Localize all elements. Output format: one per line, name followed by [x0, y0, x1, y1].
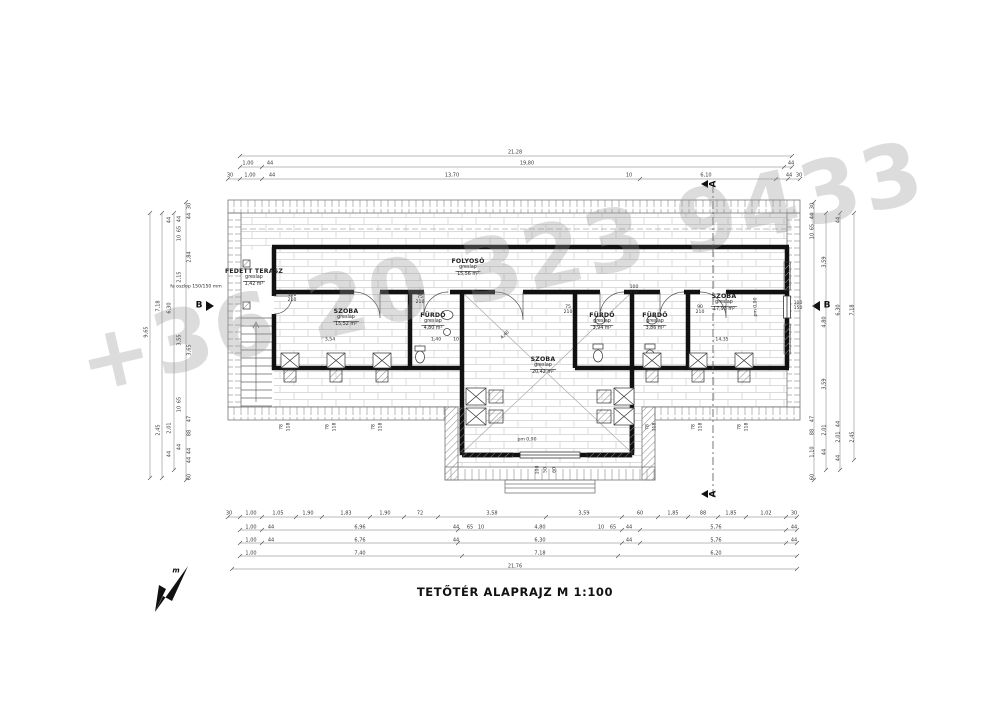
floor-plan-sheet: +36 20 323 9433 TETŐTÉR ALAPRAJZ M 1:100… [0, 0, 1000, 711]
drawing-title: TETŐTÉR ALAPRAJZ M 1:100 [315, 585, 715, 599]
north-arrow-icon [155, 566, 188, 612]
section-b-arrow-icon [812, 301, 820, 311]
section-a-arrow-icon [701, 490, 708, 498]
